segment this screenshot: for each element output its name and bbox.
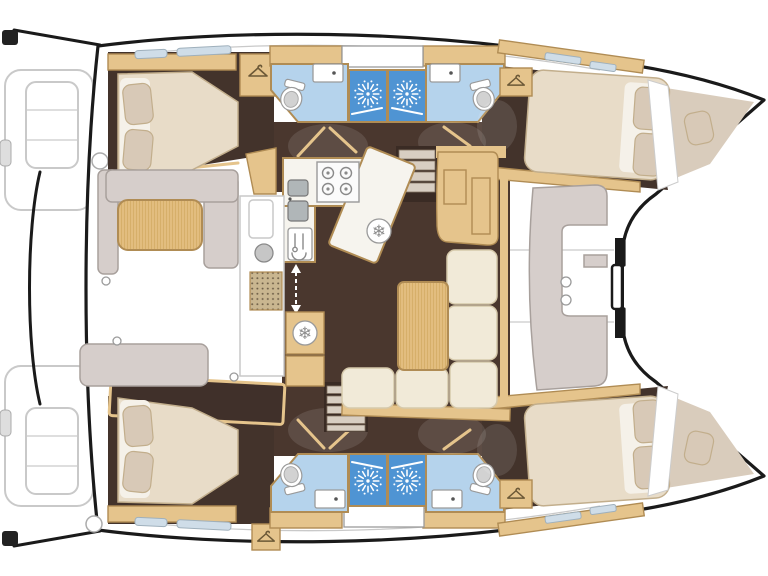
mast-step: [612, 265, 622, 309]
cup-holder: [230, 373, 238, 381]
sofa-cushion: [450, 362, 497, 408]
faucet: [332, 71, 336, 75]
pillow: [122, 451, 154, 494]
port-heads: [270, 46, 505, 122]
snowflake-glyph: ❄: [298, 324, 312, 344]
starboard-heads: [270, 454, 505, 528]
utensils-icon: [288, 228, 312, 260]
shower-sunburst-icon: [354, 467, 381, 494]
saloon-table: [398, 282, 448, 370]
deck-hatch-icon: [135, 49, 167, 59]
lounge-armrest: [584, 255, 607, 267]
sofa-cushion: [447, 250, 497, 304]
fender: [0, 140, 11, 166]
winch: [92, 153, 108, 169]
shower-sunburst-icon: [393, 467, 420, 494]
shower-sunburst-icon: [354, 80, 381, 107]
sofa-cushion: [342, 368, 394, 408]
stern-cleat: [2, 30, 18, 45]
wardrobe: [500, 480, 532, 508]
cockpit-bench: [80, 344, 208, 386]
pillow: [122, 129, 153, 171]
stove-burners-icon: [317, 162, 359, 202]
sofa-cushion: [447, 306, 497, 360]
deck-hatch-icon: [135, 517, 167, 527]
saloon-front-wall: [500, 178, 508, 402]
sink-icon: [432, 490, 462, 508]
catamaran-floorplan: ❄ ❄: [0, 0, 768, 576]
floorplan-drawing: ❄ ❄: [0, 0, 768, 576]
sink-icon: [430, 64, 460, 82]
pillow: [122, 405, 153, 447]
cabinet: [108, 506, 236, 522]
fridge-snowflake-icon: ❄: [293, 321, 317, 345]
cockpit-wet-bar: [240, 196, 284, 376]
fridge-snowflake-icon: ❄: [367, 219, 391, 243]
snowflake-glyph: ❄: [372, 222, 386, 242]
counter-top: [342, 46, 423, 67]
sofa-cushion: [396, 368, 448, 408]
wardrobe: [500, 68, 532, 96]
faucet: [334, 497, 338, 501]
door-swing-shadow: [477, 100, 517, 152]
stern-cleat: [2, 531, 18, 546]
cup-holder: [102, 277, 110, 285]
floor-grate-icon: [250, 272, 282, 310]
cockpit-sink: [255, 244, 273, 262]
door-swing-shadow: [477, 424, 517, 476]
faucet: [451, 497, 455, 501]
counter-top: [344, 506, 424, 527]
davit-line: [14, 30, 100, 45]
double-sink: [288, 180, 308, 221]
cabinet: [108, 54, 236, 70]
galley-cabinet: [286, 356, 324, 386]
cup-holder: [561, 277, 571, 287]
pillow: [122, 83, 154, 126]
cockpit-table: [118, 200, 202, 250]
sink-icon: [313, 64, 343, 82]
davit-line: [14, 531, 100, 546]
cockpit-bench: [106, 170, 238, 202]
faucet: [449, 71, 453, 75]
cup-holder: [113, 337, 121, 345]
shower-sunburst-icon: [393, 80, 420, 107]
fender: [0, 410, 11, 436]
sink-icon: [315, 490, 345, 508]
cup-holder: [561, 295, 571, 305]
transom-steps-starboard: [5, 366, 93, 506]
winch: [86, 516, 102, 532]
nav-station: [436, 146, 506, 245]
transom-steps-port: [5, 70, 93, 210]
